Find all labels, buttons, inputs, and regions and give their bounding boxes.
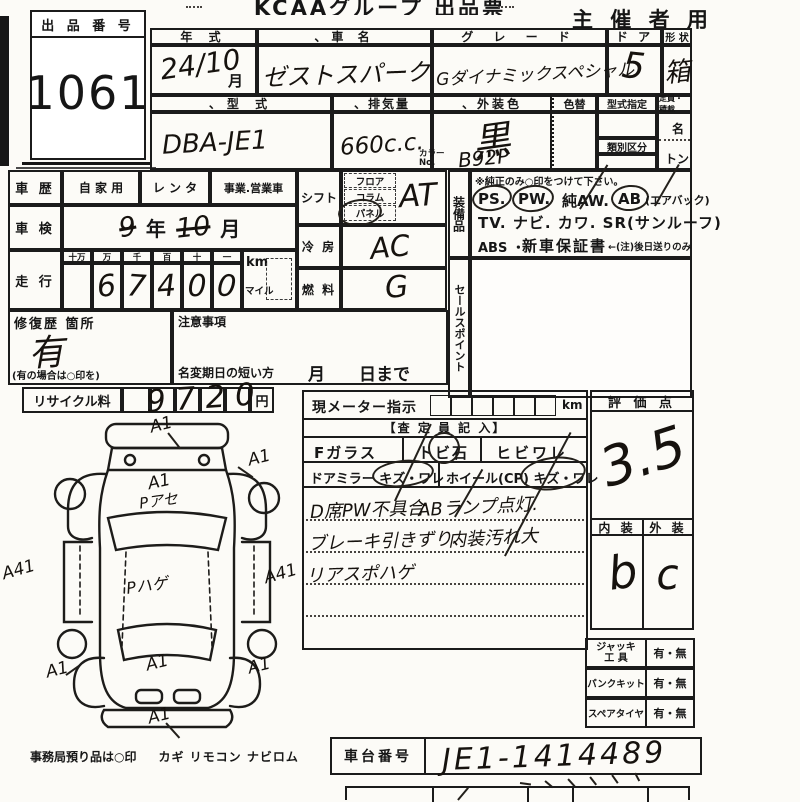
history-label: 車 歴 — [8, 170, 62, 205]
class-header: 類別区分 — [597, 138, 657, 154]
inspection-month-unit: 月 — [220, 213, 240, 242]
digit-cell: 7 — [122, 263, 152, 310]
fuel-label-text: 燃 料 — [302, 281, 336, 298]
cooling-label: 冷 房 — [297, 225, 341, 268]
fuel-label: 燃 料 — [297, 268, 341, 310]
lot-box-shadow — [22, 162, 152, 165]
equipment-label-text: 装備品 — [451, 196, 468, 232]
model-header-label: 、型 式 — [209, 95, 273, 112]
grade-header-label: グ レ ー ド — [461, 28, 578, 45]
recycle-label: リサイクル料 — [22, 387, 122, 413]
class-label: 類別区分 — [607, 139, 647, 154]
spare-tire-value: 有・無 — [645, 698, 695, 728]
bottom-partial-row — [345, 786, 690, 800]
digit-head: 十万 — [68, 251, 85, 263]
color-alt-cell — [552, 112, 597, 170]
sales-point-label-text: セールスポイント — [451, 284, 467, 372]
jack-label: ジャッキ 工 具 — [585, 638, 647, 668]
stray-mark — [589, 776, 597, 785]
name-header-label: 、車 名 — [314, 28, 374, 45]
puncture-kit-value: 有・無 — [645, 668, 695, 698]
caution-label: 注意事項 — [178, 313, 226, 330]
left-edge-bar — [0, 16, 9, 166]
shift-value: AT — [398, 177, 438, 216]
cooling-value: AC — [368, 228, 411, 266]
meter-unit: km — [562, 398, 582, 412]
exterior-header: 外 装 — [642, 518, 692, 536]
capacity-divider — [659, 139, 690, 141]
history-private-text: 自 家 用 — [79, 179, 123, 196]
lot-box-shadow2 — [16, 167, 156, 169]
cooling-label-text: 冷 房 — [302, 238, 336, 255]
grade-header: グ レ ー ド — [432, 28, 607, 45]
equipment-warranty: 新車保証書 — [522, 235, 607, 256]
digit-head: 百 — [163, 251, 172, 263]
meter-digit-box — [430, 395, 451, 416]
model-header: 、型 式 — [150, 95, 332, 112]
history-business: 事業.営業車 — [210, 170, 297, 205]
car-name-value: ゼストスパーク — [261, 52, 430, 93]
meter-digit-box — [514, 395, 535, 416]
shift-opt-floor: フロア — [344, 173, 396, 188]
door-header-label: ド ア — [616, 28, 653, 45]
digit-head-100k: 十万 — [62, 250, 92, 263]
dotted-mark — [186, 6, 202, 8]
inspection-month-struck: 10 — [174, 210, 211, 244]
rating-divider — [642, 536, 644, 628]
puncture-kit-label-text: パンクキット — [587, 676, 644, 690]
interior-header-text: 内 装 — [598, 519, 635, 536]
digit-head-10k: 万 — [92, 250, 122, 263]
jack-label-line2: 工 具 — [604, 653, 627, 665]
mileage-digit: 0 — [187, 269, 206, 304]
meter-digit-box — [535, 395, 556, 416]
shift-opt-text: フロア — [356, 174, 385, 188]
shape-header: 形 状 — [662, 28, 692, 45]
shape-value: 箱 — [662, 51, 692, 91]
digit-head: 十 — [193, 251, 202, 263]
digit-head: 万 — [103, 251, 112, 263]
shape-header-label: 形 状 — [665, 29, 688, 44]
digit-head: 一 — [223, 251, 232, 263]
km-label: km — [246, 255, 268, 270]
history-business-text: 事業.営業車 — [224, 180, 283, 196]
inspection-label-text: 車 検 — [15, 218, 55, 237]
chassis-label: 車台番号 — [332, 739, 426, 773]
year-header-label: 年 式 — [180, 28, 226, 45]
spare-tire-label-text: スペアタイヤ — [588, 706, 644, 720]
inspection-year-struck: 9 — [116, 211, 138, 245]
rating-header: 評 価 点 — [592, 392, 692, 412]
sales-point-box — [470, 258, 692, 398]
puncture-kit-value-text: 有・無 — [654, 675, 687, 691]
mileage-digit: 4 — [156, 268, 177, 304]
disp-header: 、排気量 — [332, 95, 432, 112]
history-private: 自 家 用 — [62, 170, 140, 205]
jack-label-line1: ジャッキ — [596, 642, 636, 654]
page-title: KCAAグループ 出品票 — [254, 0, 506, 15]
digit-head-1: 一 — [212, 250, 242, 263]
sales-point-label: セールスポイント — [448, 258, 470, 398]
fglass-label: Fガラス — [314, 442, 377, 463]
exterior-value: c — [654, 549, 680, 599]
equipment-line2: TV. ナビ. カワ. SR(サンルーフ) — [478, 212, 722, 233]
inspection-cell: 9 年 10 月 — [62, 205, 297, 250]
meter-label: 現メーター指示 — [312, 397, 417, 417]
digit-cell — [62, 263, 92, 310]
history-rental: レ ン タ — [140, 170, 210, 205]
color-alt-header: 色替 — [552, 95, 597, 112]
appraiser-note-3: リアスポハゲ — [306, 558, 415, 588]
name-change-deadline: 月 日まで — [308, 360, 410, 385]
jack-value-text: 有・無 — [654, 645, 687, 661]
puncture-kit-label: パンクキット — [585, 668, 647, 698]
mileage-digit: 0 — [216, 268, 238, 305]
mileage-digit: 6 — [96, 268, 119, 305]
office-items: カギ リモコン ナビロム — [158, 748, 298, 765]
rating-header-text: 評 価 点 — [608, 392, 676, 411]
shift-label-text: シフト — [301, 189, 337, 206]
recycle-label-text: リサイクル料 — [33, 391, 110, 410]
shift-label: シフト — [297, 170, 341, 225]
dotted-mark — [498, 6, 514, 8]
door-value: 5 — [620, 45, 647, 88]
color-alt-label: 色替 — [564, 96, 586, 112]
jack-value: 有・無 — [645, 638, 695, 668]
lot-number: 1061 — [32, 38, 144, 148]
digit-head-100: 百 — [152, 250, 182, 263]
digit-cell: 4 — [152, 263, 182, 310]
chassis-label-text: 車台番号 — [344, 746, 412, 766]
name-header: 、車 名 — [257, 28, 432, 45]
digit-head-1k: 千 — [122, 250, 152, 263]
equipment-warranty-note: ←(注)後日送りのみ — [608, 239, 691, 253]
history-label-text: 車 歴 — [15, 178, 55, 197]
type-desig-label: 型式指定 — [607, 96, 647, 111]
repair-note: (有の場合は○印を) — [12, 367, 100, 382]
mileage-digit: 7 — [126, 268, 147, 304]
appraiser-note-1a: D席PW不具合 — [310, 494, 425, 524]
lot-box: 出 品 番 号 1061 — [30, 10, 146, 160]
disp-header-label: 、排気量 — [354, 95, 410, 112]
office-note: 事務局預り品は○印 — [30, 748, 136, 765]
digit-head-10: 十 — [182, 250, 212, 263]
appraiser-note-2b: 内装汚れ大 — [447, 522, 538, 553]
stray-mark — [611, 774, 619, 783]
digit-cell: 0 — [212, 263, 242, 310]
note-line — [306, 615, 584, 617]
history-rental-text: レ ン タ — [153, 179, 197, 196]
spare-tire-value-text: 有・無 — [654, 705, 687, 721]
auction-sheet: { "header":{"title":"KCAAグループ 出品票","orga… — [0, 0, 800, 800]
digit-cell: 0 — [182, 263, 212, 310]
inspection-year-unit: 年 — [146, 213, 166, 242]
mileage-label: 走 行 — [8, 250, 62, 310]
equipment-label: 装備品 — [448, 170, 470, 258]
digit-cell: 6 — [92, 263, 122, 310]
capacity-persons: 名 — [672, 120, 684, 137]
type-desig-cell — [597, 112, 657, 138]
model-value: DBA-JE1 — [161, 125, 268, 160]
lot-label: 出 品 番 号 — [32, 12, 144, 38]
meter-digit-box — [472, 395, 493, 416]
meter-digit-box — [451, 395, 472, 416]
interior-header: 内 装 — [592, 518, 642, 536]
door-header: ド ア — [607, 28, 662, 45]
digit-head: 千 — [133, 251, 142, 263]
spare-tire-label: スペアタイヤ — [585, 698, 647, 728]
mileage-label-text: 走 行 — [15, 271, 55, 290]
equipment-abs: ABS ・ — [478, 237, 525, 256]
fuel-value: G — [384, 269, 410, 306]
year-header: 年 式 — [150, 28, 257, 45]
capacity-header: 定員・積載 — [657, 95, 692, 112]
exterior-header-text: 外 装 — [649, 519, 686, 536]
color-no-label: カラーNo. — [419, 150, 459, 169]
type-desig-header: 型式指定 — [597, 95, 657, 112]
mile-checkbox — [266, 258, 292, 300]
meter-digit-box — [493, 395, 514, 416]
year-unit: 月 — [228, 70, 243, 91]
inspection-label: 車 検 — [8, 205, 62, 250]
color-no-value: B92P — [457, 144, 510, 172]
office-note-row: 事務局預り品は○印 カギ リモコン ナビロム — [30, 748, 299, 765]
